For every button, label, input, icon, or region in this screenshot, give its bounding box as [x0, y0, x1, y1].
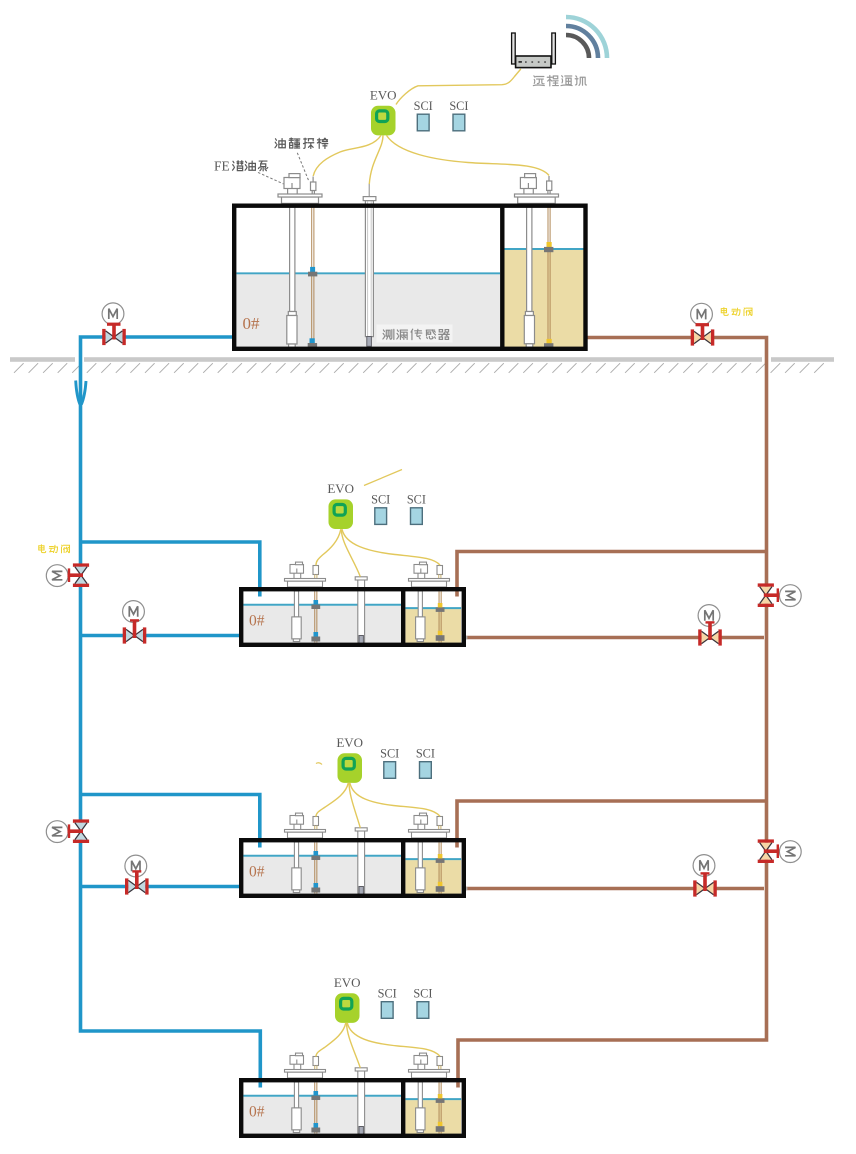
svg-text:SCI: SCI	[407, 493, 426, 507]
svg-text:SCI: SCI	[378, 987, 397, 1001]
svg-text:0#: 0#	[243, 314, 261, 333]
svg-text:SCI: SCI	[371, 493, 390, 507]
svg-text:FE: FE	[214, 158, 230, 173]
svg-text:SCI: SCI	[416, 747, 435, 761]
svg-text:SCI: SCI	[449, 99, 468, 113]
svg-text:SCI: SCI	[413, 987, 432, 1001]
svg-text:EVO: EVO	[336, 735, 363, 750]
svg-text:EVO: EVO	[370, 87, 397, 102]
svg-text:SCI: SCI	[380, 747, 399, 761]
svg-text:EVO: EVO	[334, 975, 361, 990]
svg-text:SCI: SCI	[414, 99, 433, 113]
svg-text:EVO: EVO	[327, 481, 354, 496]
